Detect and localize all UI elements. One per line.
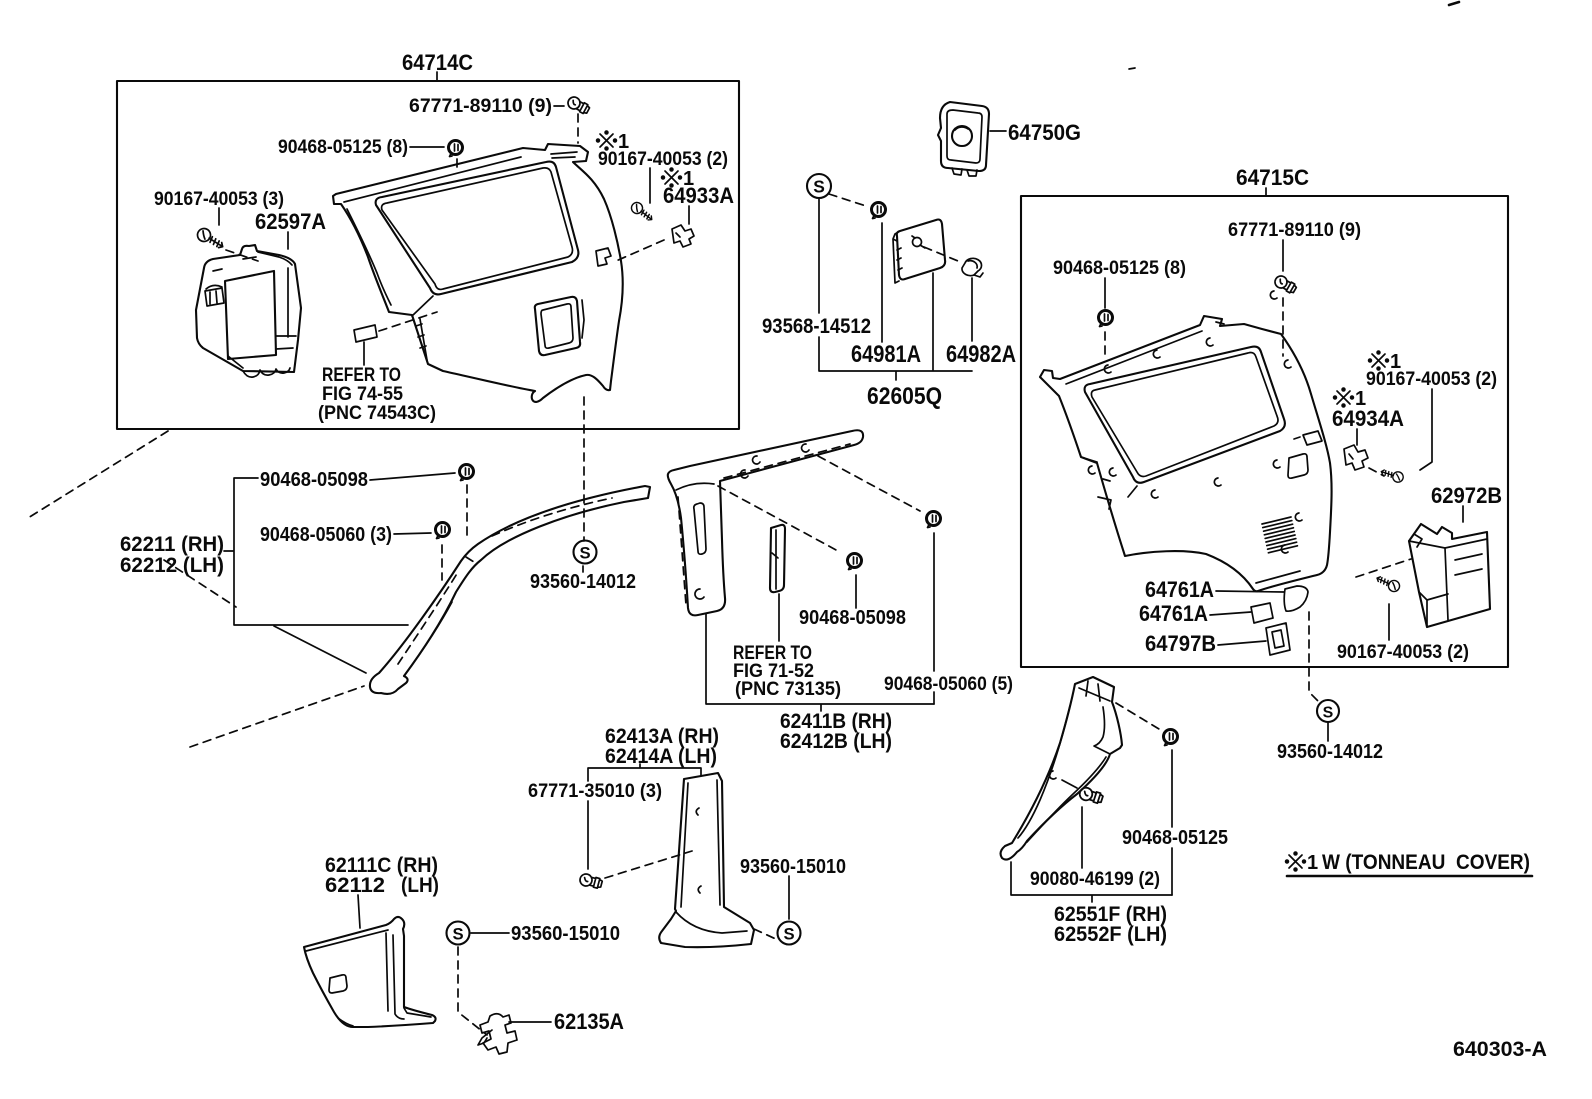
svg-text:90468-05060 (5): 90468-05060 (5)	[884, 674, 1013, 695]
svg-text:S: S	[579, 544, 590, 563]
svg-text:90167-40053 (3): 90167-40053 (3)	[154, 189, 284, 210]
svg-text:67771-35010 (3): 67771-35010 (3)	[528, 781, 662, 802]
svg-text:90468-05125 (8): 90468-05125 (8)	[1053, 258, 1186, 279]
svg-text:93560-14012: 93560-14012	[530, 571, 636, 593]
svg-text:62412B (LH): 62412B (LH)	[780, 730, 892, 753]
svg-text:S: S	[813, 177, 825, 197]
svg-text:90167-40053 (2): 90167-40053 (2)	[598, 149, 728, 170]
svg-text:90468-05125 (8): 90468-05125 (8)	[278, 137, 408, 158]
svg-text:W (TONNEAU COVER): W (TONNEAU COVER)	[1322, 851, 1530, 874]
svg-text:64982A: 64982A	[946, 341, 1016, 368]
svg-text:62414A (LH): 62414A (LH)	[605, 745, 717, 768]
svg-text:64933A: 64933A	[663, 183, 734, 208]
svg-text:62112: 62112	[325, 874, 385, 897]
svg-text:90468-05098: 90468-05098	[260, 469, 368, 491]
svg-text:64714C: 64714C	[402, 50, 473, 75]
svg-text:64934A: 64934A	[1332, 406, 1404, 431]
svg-text:93568-14512: 93568-14512	[762, 315, 871, 338]
svg-text:62211 (RH): 62211 (RH)	[120, 533, 224, 556]
svg-text:62135A: 62135A	[554, 1009, 624, 1034]
svg-text:S: S	[783, 925, 794, 944]
svg-text:64797B: 64797B	[1145, 631, 1216, 656]
svg-text:93560-14012: 93560-14012	[1277, 741, 1383, 763]
svg-text:640303-A: 640303-A	[1453, 1038, 1547, 1061]
svg-text:93560-15010: 93560-15010	[740, 856, 846, 878]
svg-text:67771-89110 (9): 67771-89110 (9)	[409, 96, 552, 117]
svg-text:62597A: 62597A	[255, 209, 326, 234]
svg-text:64750G: 64750G	[1008, 120, 1081, 145]
svg-text:62552F (LH): 62552F (LH)	[1054, 923, 1167, 946]
svg-text:S: S	[452, 925, 463, 944]
svg-text:90468-05098: 90468-05098	[799, 607, 906, 629]
svg-text:62972B: 62972B	[1431, 483, 1502, 508]
svg-text:64715C: 64715C	[1236, 165, 1309, 190]
svg-text:FIG 74-55: FIG 74-55	[322, 384, 403, 405]
svg-text:90080-46199 (2): 90080-46199 (2)	[1030, 869, 1160, 890]
svg-text:(LH): (LH)	[401, 874, 439, 897]
svg-text:S: S	[1323, 705, 1334, 722]
svg-text:64981A: 64981A	[851, 341, 921, 368]
svg-text:1: 1	[1307, 852, 1318, 874]
svg-text:90167-40053 (2): 90167-40053 (2)	[1337, 642, 1469, 663]
svg-text:67771-89110 (9): 67771-89110 (9)	[1228, 220, 1361, 241]
svg-text:64761A: 64761A	[1139, 601, 1208, 626]
svg-text:90468-05125: 90468-05125	[1122, 827, 1228, 849]
svg-text:REFER TO: REFER TO	[322, 365, 401, 386]
svg-text:93560-15010: 93560-15010	[511, 923, 620, 945]
svg-text:90167-40053 (2): 90167-40053 (2)	[1366, 369, 1497, 390]
svg-text:64761A: 64761A	[1145, 577, 1214, 602]
svg-text:90468-05060 (3): 90468-05060 (3)	[260, 524, 392, 546]
svg-text:(PNC 74543C): (PNC 74543C)	[318, 403, 436, 424]
svg-text:(PNC 73135): (PNC 73135)	[735, 679, 841, 700]
svg-text:62605Q: 62605Q	[867, 383, 942, 410]
svg-text:62212 (LH): 62212 (LH)	[120, 554, 224, 577]
